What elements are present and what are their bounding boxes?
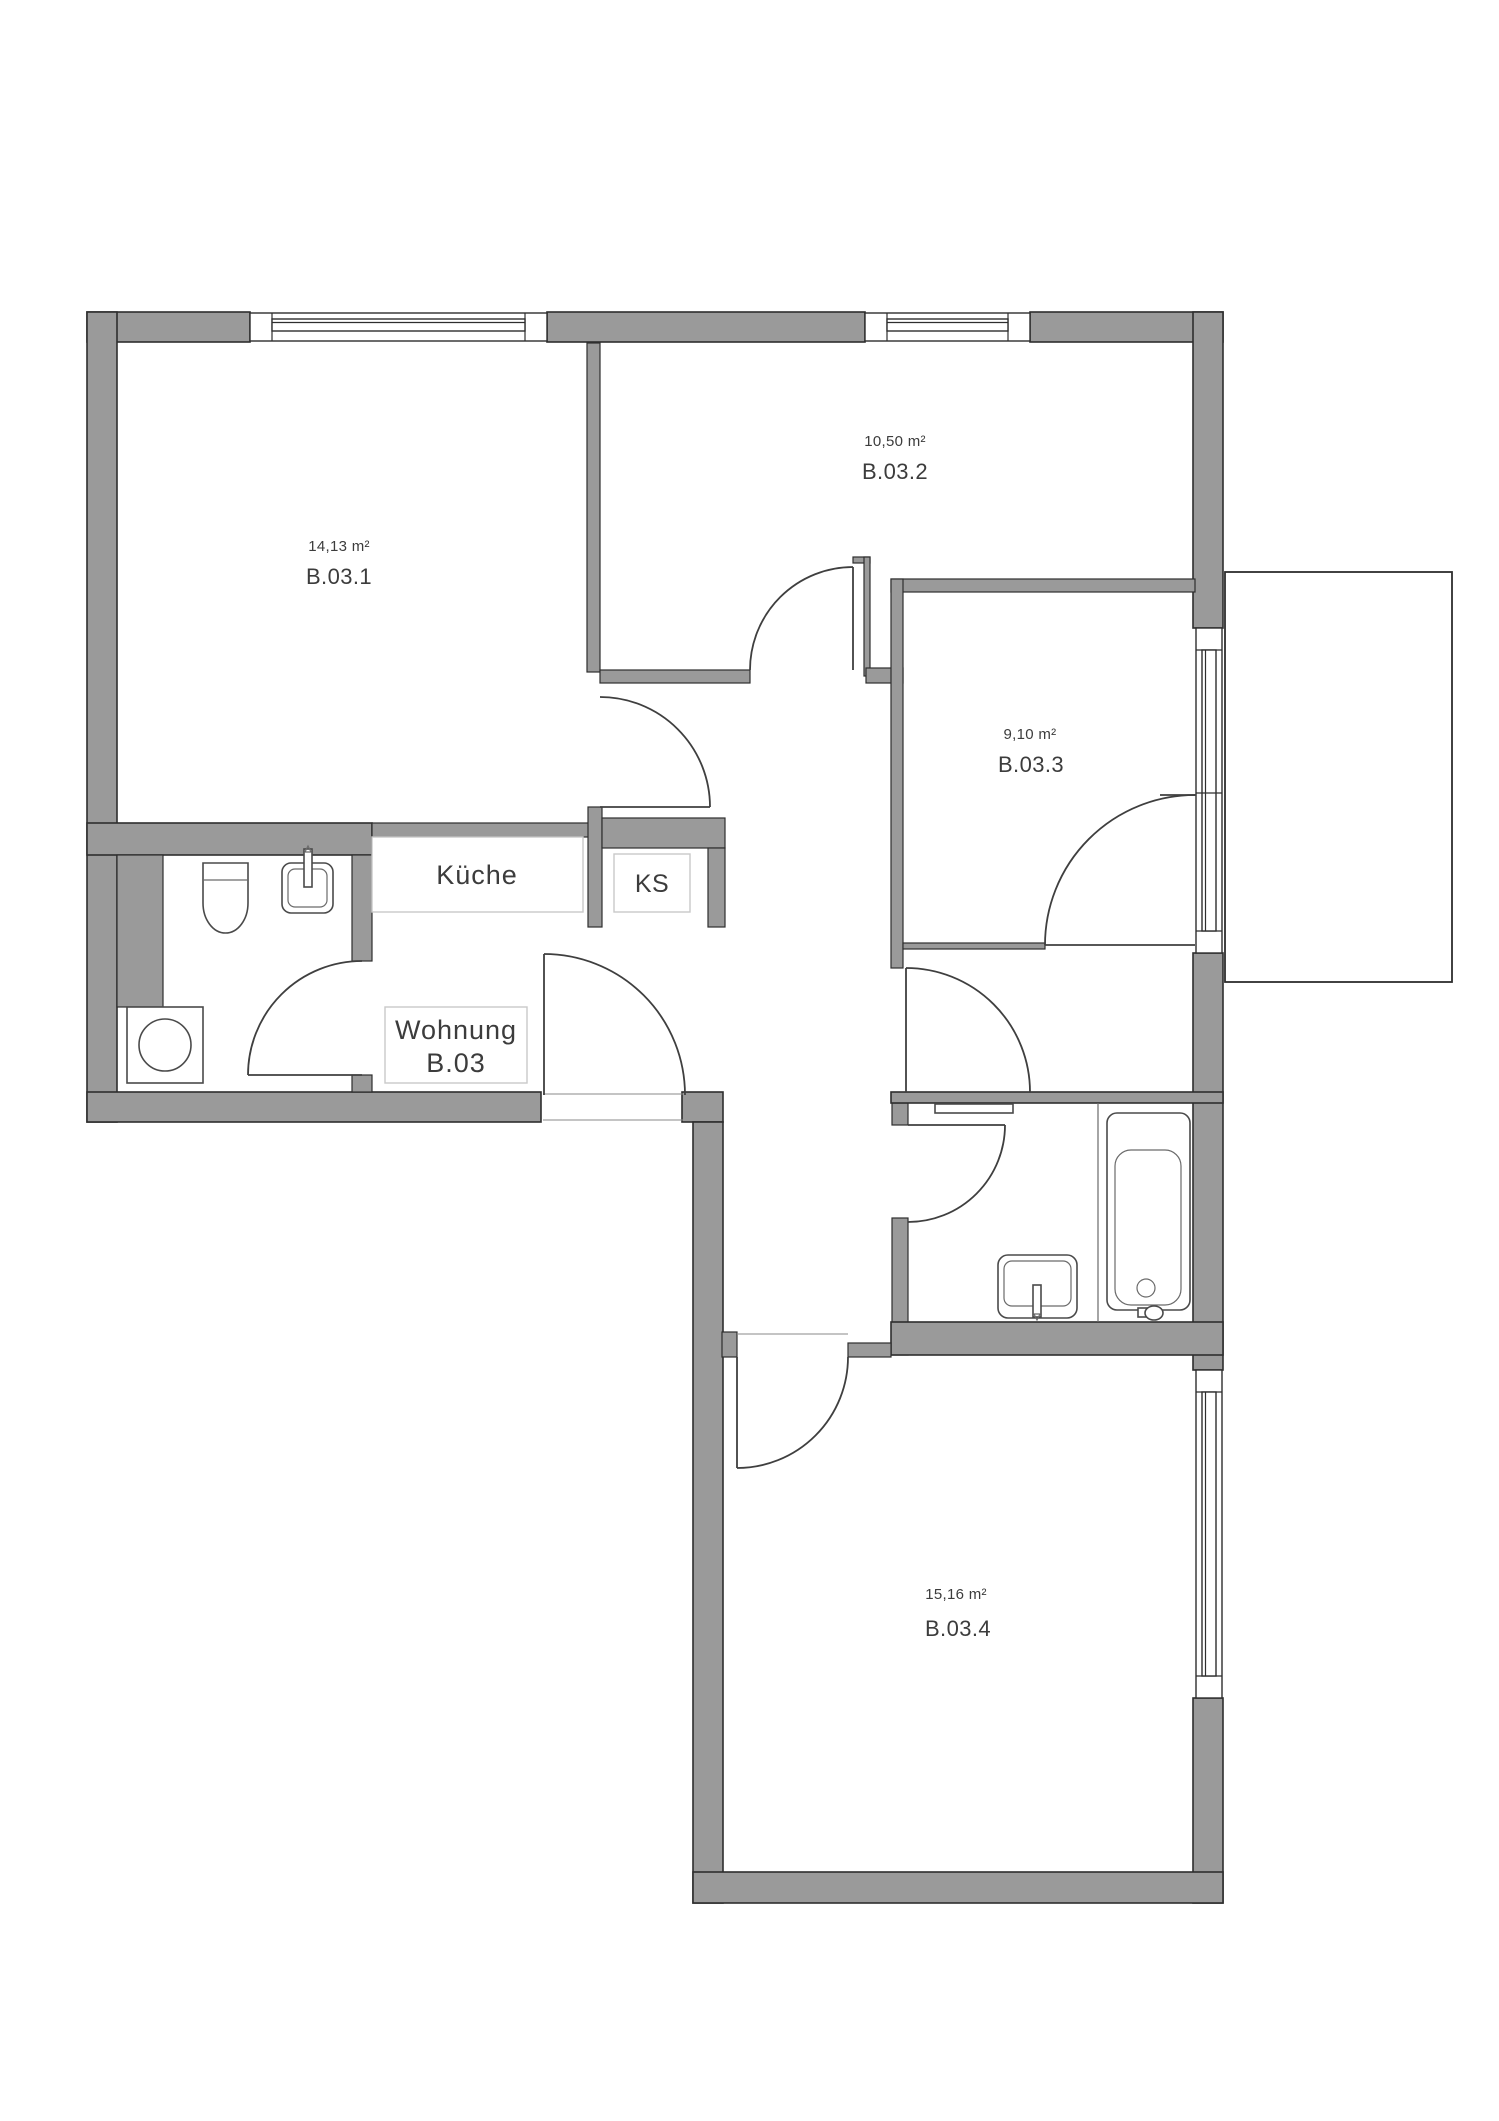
- room-b031-area: 14,13 m²: [308, 538, 370, 555]
- door-wc: [248, 961, 362, 1075]
- toilet: [203, 863, 248, 933]
- door-b034: [737, 1334, 848, 1468]
- door-bathroom: [908, 1125, 1005, 1222]
- wall-b032-corner-v: [864, 557, 870, 676]
- exterior-walls: [87, 312, 1223, 1903]
- wall-b034-top-right-stub: [848, 1343, 891, 1357]
- window-b032: [865, 313, 1030, 341]
- door-b031: [600, 697, 710, 807]
- window-b034: [1196, 1370, 1222, 1698]
- room-b034-name: B.03.4: [925, 1616, 991, 1641]
- wc-sink: [282, 846, 333, 913]
- room-b034-area: 15,16 m²: [925, 1586, 987, 1603]
- wall-right-upper: [1193, 312, 1223, 628]
- wall-left: [87, 312, 117, 1122]
- door-hall-passage: [906, 968, 1030, 1092]
- unit-label: Wohnung B.03: [385, 1007, 527, 1083]
- wall-ks-top: [602, 818, 725, 848]
- wall-b033-bottom: [903, 943, 1045, 949]
- wall-stub-below-b032: [600, 670, 750, 683]
- wall-ks-left: [588, 807, 602, 927]
- floor-plan: 14,13 m² B.03.1 10,50 m² B.03.2 9,10 m² …: [0, 0, 1499, 2121]
- wall-wc-right-upper: [352, 855, 372, 961]
- window-b031: [250, 313, 547, 341]
- wall-b033-top: [891, 579, 1195, 592]
- door-entry: [543, 954, 685, 1120]
- bath-sink: [998, 1255, 1077, 1320]
- wall-b031-bottom: [87, 823, 372, 855]
- radiator: [935, 1104, 1013, 1113]
- unit-label-line2: B.03: [426, 1048, 486, 1078]
- room-b031-name: B.03.1: [306, 564, 372, 589]
- wall-bath-left-upper: [892, 1103, 908, 1125]
- wall-bath-top: [891, 1092, 1223, 1103]
- kitchen-label: Küche: [372, 837, 583, 912]
- fridge-label-text: KS: [635, 870, 669, 898]
- wall-entry-corner: [682, 1092, 723, 1122]
- room-b032-name: B.03.2: [862, 459, 928, 484]
- unit-label-line1: Wohnung: [395, 1015, 517, 1045]
- window-b033-balcony: [1196, 628, 1222, 953]
- bathtub: [1107, 1113, 1190, 1320]
- wall-right-middle: [1193, 953, 1223, 1370]
- wall-bath-bottom: [891, 1322, 1223, 1355]
- door-b032: [750, 567, 853, 670]
- wall-b031-b032-divider: [587, 343, 600, 672]
- fridge-label: KS: [614, 854, 690, 912]
- interior-walls: [87, 343, 1223, 1357]
- wall-bottom-b034: [693, 1872, 1223, 1903]
- boxed-labels: Küche KS Wohnung B.03: [372, 837, 690, 1083]
- wall-b034-top-left-stub: [722, 1332, 737, 1357]
- wall-corridor-left: [693, 1122, 723, 1903]
- kitchen-label-text: Küche: [436, 860, 518, 890]
- room-b033-name: B.03.3: [998, 752, 1064, 777]
- wall-wc-pier: [117, 855, 163, 1007]
- washing-machine: [127, 1007, 203, 1083]
- floor-plan-drawing: 14,13 m² B.03.1 10,50 m² B.03.2 9,10 m² …: [0, 0, 1499, 2121]
- wall-top-middle: [547, 312, 865, 342]
- wall-kitchen-top: [372, 823, 600, 837]
- wall-b033-left: [891, 579, 903, 968]
- wall-wc-right-lower: [352, 1075, 372, 1092]
- room-b033-area: 9,10 m²: [1004, 726, 1057, 743]
- room-b032-area: 10,50 m²: [864, 433, 926, 450]
- wall-bottom-upper-section: [87, 1092, 541, 1122]
- windows: [250, 313, 1222, 1698]
- balcony: [1225, 572, 1452, 982]
- door-b033-balcony: [1045, 795, 1196, 945]
- wall-ks-right: [708, 848, 725, 927]
